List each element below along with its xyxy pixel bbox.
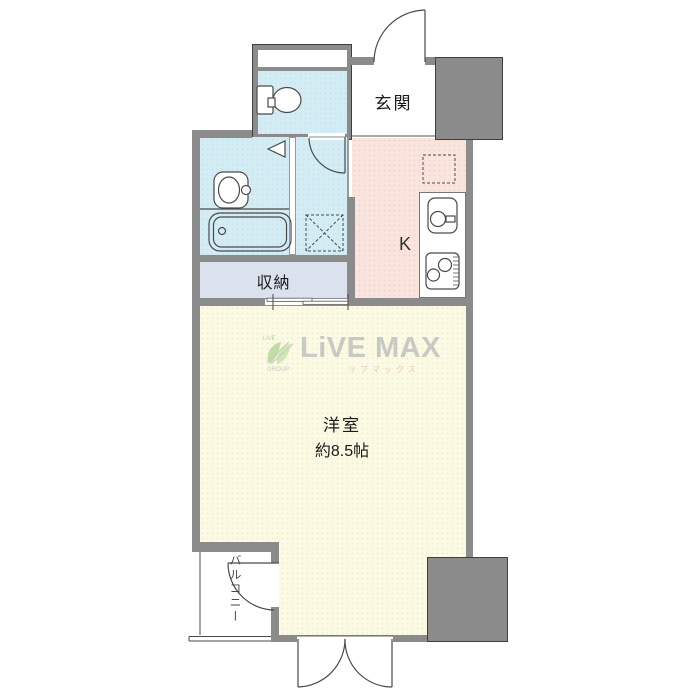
livemax-watermark: LiVE GROUP LiVE MAX リブマックス xyxy=(260,331,450,373)
logo-text-bottom: GROUP xyxy=(267,367,289,372)
bathroom-door-icon xyxy=(268,141,285,157)
genkan-label: 玄関 xyxy=(352,89,435,114)
main-room-type-label: 洋室 xyxy=(262,411,422,436)
washing-machine-pan-icon xyxy=(306,215,343,251)
bathtub-icon xyxy=(209,213,291,251)
floor-plan: LiVE GROUP LiVE MAX リブマックス 玄関 K 収納 洋室 約8… xyxy=(0,0,700,700)
toilet-icon xyxy=(257,86,301,114)
toilet-door-swing-icon xyxy=(309,137,345,173)
terrace-double-door-icon xyxy=(297,636,393,687)
storage-label: 収納 xyxy=(200,269,347,293)
refrigerator-space-icon xyxy=(423,155,455,183)
stove-icon xyxy=(426,253,459,289)
balcony-label: バルコニー xyxy=(227,554,244,634)
logo-text-top: LiVE xyxy=(263,336,276,342)
watermark-brand-text: LiVE MAX xyxy=(300,332,441,365)
entrance-door-swing-icon xyxy=(374,10,425,62)
livemax-logo-icon: LiVE GROUP xyxy=(262,332,298,372)
main-room-size-label: 約8.5帖 xyxy=(262,437,422,461)
kitchen-sink-icon xyxy=(428,198,457,233)
storage-sliding-door-icon xyxy=(267,294,348,310)
washbasin-icon xyxy=(214,172,251,208)
kitchen-label: K xyxy=(395,234,415,255)
watermark-kana-text: リブマックス xyxy=(348,364,420,375)
